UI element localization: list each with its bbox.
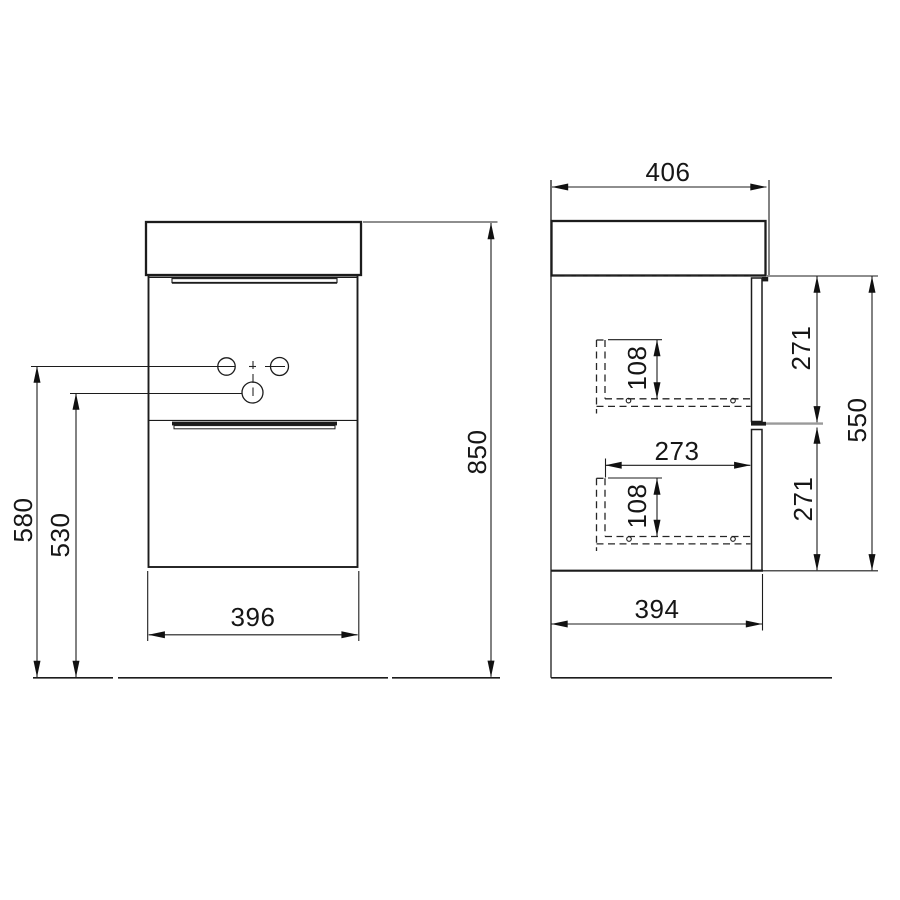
dim-label-faucet-height: 580	[8, 498, 38, 543]
side-washbasin	[552, 221, 766, 276]
lower-rail-screw-hole-1	[627, 537, 632, 542]
drawing-canvas: 580 530 850 396	[0, 0, 900, 900]
dim-label-top-depth: 406	[646, 157, 691, 187]
front-upper-drawer-handle	[149, 277, 357, 282]
technical-drawing: 580 530 850 396	[0, 0, 900, 900]
side-dimensions: 406 271 271 550 108 108 273 394	[552, 157, 879, 630]
dim-label-body-depth: 394	[635, 594, 680, 624]
front-view	[146, 222, 361, 567]
front-washbasin	[146, 222, 361, 275]
dim-label-rail-length: 273	[655, 436, 700, 466]
side-upper-drawer-front	[752, 278, 763, 422]
front-cabinet-body	[149, 276, 358, 568]
lower-rail-screw-hole-2	[731, 537, 736, 542]
centerline	[249, 361, 256, 396]
front-dimensions: 580 530 850 396	[8, 222, 500, 678]
dim-label-upper-rail-offset: 108	[622, 346, 652, 391]
side-view	[551, 180, 832, 678]
dim-label-lower-drawer-height: 271	[788, 477, 818, 522]
side-lower-drawer-front	[752, 430, 763, 571]
dim-label-drain-height: 530	[45, 513, 75, 558]
dim-label-width: 396	[231, 602, 276, 632]
upper-drawer-lip	[762, 277, 768, 281]
upper-drawer-rail-hidden	[597, 340, 751, 414]
front-lower-drawer-handle	[149, 420, 357, 428]
dim-label-body-height: 550	[842, 398, 872, 443]
drawer-divider-lip	[751, 422, 766, 426]
dim-label-upper-drawer-height: 271	[786, 326, 816, 371]
lower-drawer-rail-hidden	[597, 478, 751, 551]
dim-label-total-height: 850	[462, 430, 492, 475]
dim-label-lower-rail-offset: 108	[622, 484, 652, 529]
